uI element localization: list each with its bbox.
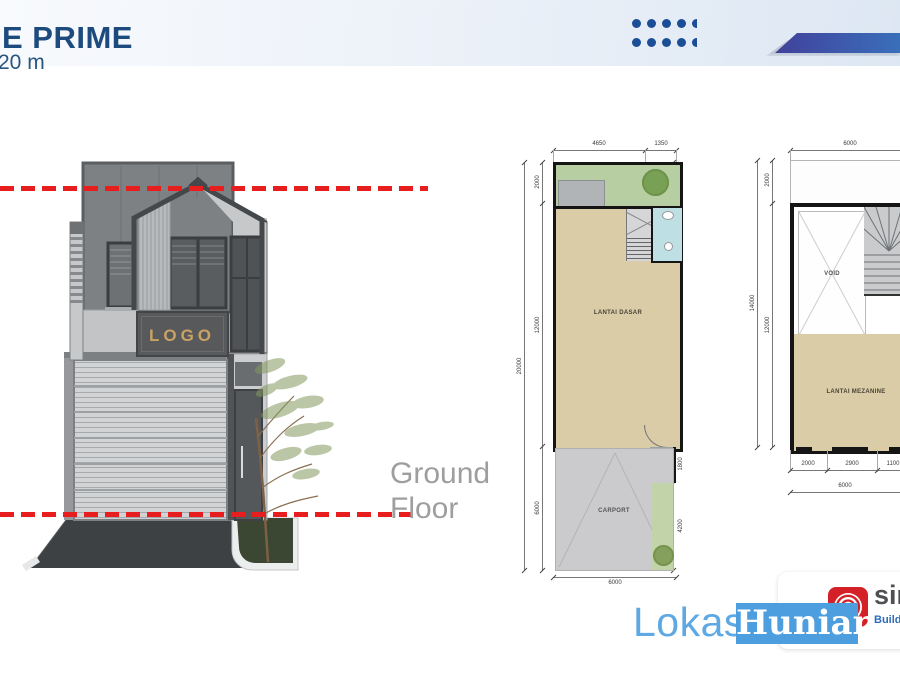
dim-label: 6000 (826, 141, 874, 147)
ground-floor-line1: Ground (390, 456, 490, 491)
dim-label: 1100 (878, 461, 900, 467)
watermark-hunian: Hunian (736, 603, 858, 643)
toilet-icon (662, 211, 674, 220)
dim-label: 2000 (765, 173, 771, 186)
mezzanine-floor: LANTAI MEZANINE (794, 334, 900, 451)
floorplan-ground: 4650 1350 20000 2000 12000 6000 2000 275… (515, 140, 705, 600)
watermark-hunian-box: Hunian (736, 603, 858, 644)
ribbon-decoration (775, 33, 900, 53)
dim-label: 2900 (828, 461, 876, 467)
garden-deck (558, 180, 605, 208)
dim-line (790, 470, 900, 471)
window-left (105, 243, 135, 311)
dim-label: 4650 (575, 141, 623, 147)
dim-line (757, 160, 758, 447)
dim-line (790, 492, 900, 493)
ground-floor-line2: Floor (390, 491, 490, 526)
dim-label: 6000 (591, 580, 639, 586)
stair-mezzanine (864, 207, 900, 296)
bathroom (651, 208, 682, 263)
logo-signboard: LOGO (137, 312, 228, 356)
dim-label: 6000 (535, 501, 541, 514)
plan-ground-body: LANTAI DASAR (553, 162, 683, 452)
room-label-carport: CARPORT (598, 508, 630, 514)
window-middle (170, 238, 226, 308)
dim-label: 1350 (637, 141, 685, 147)
dim-label: 20000 (517, 358, 523, 375)
vendor-tagline: Buildin (874, 614, 900, 626)
roof-overhang (790, 160, 900, 205)
sink-icon (664, 242, 673, 251)
dots-decoration (632, 19, 712, 49)
roller-shutter-door (74, 360, 227, 520)
level-line-ground (0, 512, 420, 517)
door-swing-arc (644, 425, 667, 448)
slide-canvas: E PRIME 20 m (0, 0, 900, 675)
dim-label: 1800 (678, 457, 684, 470)
stair (626, 209, 652, 261)
dim-label: 4200 (678, 519, 684, 532)
page-subtitle: 20 m (0, 51, 45, 75)
void-area: VOID (798, 211, 866, 336)
dim-label: 12000 (535, 317, 541, 334)
garden-bush (653, 545, 674, 566)
dim-label: 14000 (750, 295, 756, 312)
dim-line (542, 162, 543, 570)
dim-label: 6000 (821, 483, 869, 489)
ground-floor-annotation: Ground Floor (390, 456, 490, 526)
logo-sign-text: LOGO (149, 326, 215, 345)
louver-window (70, 222, 83, 360)
dim-label: 2000 (535, 175, 541, 188)
dim-label: 2000 (784, 461, 832, 467)
dim-label: 12000 (765, 317, 771, 334)
floorplan-mezzanine: 6000 14000 2000 12000 VOID (750, 140, 900, 505)
plan-mezzanine-body: VOID LANTAI MEZANIN (790, 203, 900, 454)
garden-tree (642, 169, 669, 196)
top-banner-band (0, 0, 900, 66)
dim-line (790, 150, 900, 151)
dim-line (524, 162, 525, 570)
room-label-mezzanine: LANTAI MEZANINE (826, 389, 885, 395)
vendor-name: sin (874, 580, 900, 611)
level-line-roof (0, 186, 428, 191)
window-right-tall (231, 237, 263, 351)
room-label-floor: LANTAI DASAR (594, 310, 642, 316)
dim-line (553, 150, 677, 151)
dim-line (553, 577, 677, 578)
side-garden-strip (652, 483, 673, 570)
room-label-void: VOID (824, 271, 840, 277)
